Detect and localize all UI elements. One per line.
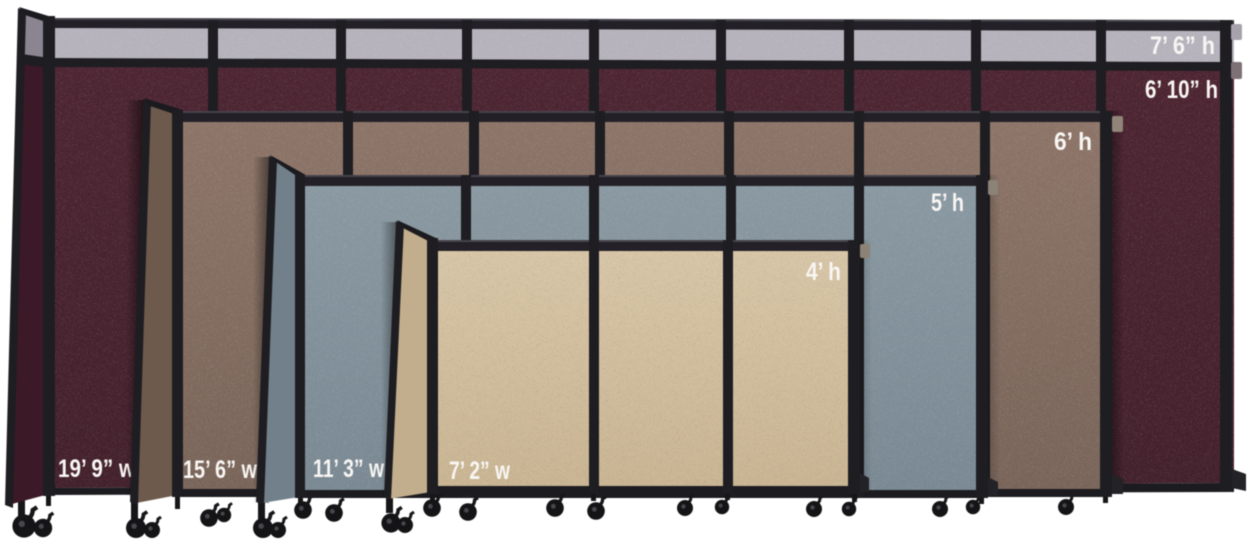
svg-text:15’ 6” w: 15’ 6” w	[183, 456, 257, 484]
svg-text:7’ 6” h: 7’ 6” h	[1150, 32, 1215, 60]
svg-text:4’ h: 4’ h	[806, 258, 841, 286]
svg-text:6’ 10” h: 6’ 10” h	[1145, 76, 1218, 104]
svg-text:6’ h: 6’ h	[1054, 128, 1092, 156]
svg-text:19’ 9” w: 19’ 9” w	[58, 455, 135, 483]
svg-text:5’ h: 5’ h	[931, 189, 964, 217]
svg-text:7’ 2” w: 7’ 2” w	[449, 457, 510, 485]
svg-text:11’ 3” w: 11’ 3” w	[313, 455, 384, 483]
